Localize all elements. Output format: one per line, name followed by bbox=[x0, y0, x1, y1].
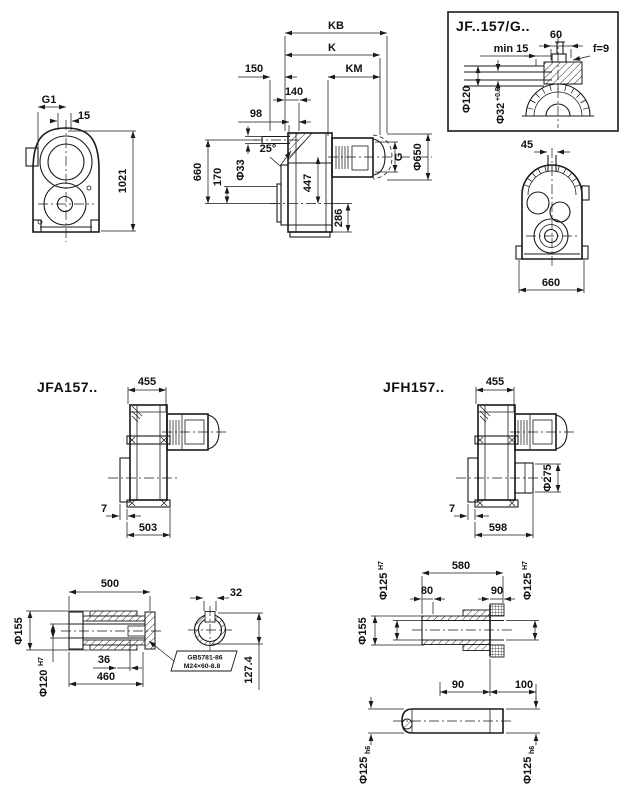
callout-standard: GB5781-86 bbox=[187, 655, 222, 662]
jfa-title: JFA157.. bbox=[37, 379, 98, 395]
jfa157-view: JFA157.. 455 bbox=[37, 376, 228, 538]
input-cone bbox=[288, 133, 312, 160]
dim-660-rear: 660 bbox=[542, 277, 560, 289]
jfh-title: JFH157.. bbox=[383, 379, 445, 395]
dim-170: 170 bbox=[212, 168, 224, 186]
motor-body bbox=[332, 138, 373, 177]
dim-phi650: Φ650 bbox=[412, 143, 424, 170]
shrink-disk-top bbox=[490, 604, 504, 616]
dim-1021: 1021 bbox=[117, 169, 129, 193]
svg-text:H7: H7 bbox=[522, 561, 529, 570]
dim-127-4: 127.4 bbox=[243, 655, 255, 683]
plug-in-shaft-dims: Φ125 h6 Φ125 h6 bbox=[358, 697, 540, 784]
shaft-left-flange bbox=[69, 612, 83, 649]
svg-text:h6: h6 bbox=[529, 746, 536, 754]
terminal-box bbox=[26, 148, 38, 166]
dim-phi125-h7-right: Φ125 bbox=[522, 573, 534, 600]
callout-bolt-size: M24×60-8.8 bbox=[184, 663, 221, 670]
dim-phi32: Φ32 bbox=[495, 103, 507, 124]
dim-kb: KB bbox=[328, 20, 344, 32]
dim-90-bottom: 90 bbox=[452, 679, 464, 691]
dim-150: 150 bbox=[245, 63, 263, 75]
end-washer bbox=[552, 54, 566, 62]
dim-460: 460 bbox=[97, 671, 115, 683]
dim-phi275: Φ275 bbox=[542, 464, 554, 491]
dim-phi155-left: Φ155 bbox=[13, 617, 25, 644]
dim-100: 100 bbox=[515, 679, 533, 691]
dim-phi120-tolerance: H7 bbox=[38, 657, 45, 666]
dim-580: 580 bbox=[452, 560, 470, 572]
dim-36: 36 bbox=[98, 654, 110, 666]
dim-80: 80 bbox=[421, 585, 433, 597]
dim-km: KM bbox=[345, 63, 362, 75]
dim-phi120-h7: Φ120 bbox=[38, 670, 50, 697]
dim-503: 503 bbox=[139, 522, 157, 534]
dim-60: 60 bbox=[550, 29, 562, 41]
dim-phi120: Φ120 bbox=[461, 86, 473, 113]
motor-fan-grille bbox=[336, 146, 348, 169]
jfh-dims: 455 Φ275 7 598 bbox=[449, 376, 561, 538]
dim-455-jfa: 455 bbox=[138, 376, 156, 388]
dim-98: 98 bbox=[250, 108, 262, 120]
svg-text:h6: h6 bbox=[365, 746, 372, 754]
dim-32: 32 bbox=[230, 587, 242, 599]
dim-phi125-h7-left: Φ125 bbox=[378, 573, 390, 600]
dim-k: K bbox=[328, 42, 336, 54]
jfa-bolt-marks bbox=[129, 437, 167, 443]
jfh-output-hub bbox=[468, 458, 478, 502]
dim-g1: G1 bbox=[42, 94, 57, 106]
dim-90-top: 90 bbox=[491, 585, 503, 597]
dim-7-jfh: 7 bbox=[449, 503, 455, 515]
dim-7-jfa: 7 bbox=[101, 503, 107, 515]
side-view: KB K KM 150 140 98 660 17 bbox=[192, 20, 432, 237]
shaft-end-cap bbox=[145, 612, 155, 649]
side-view-dims: KB K KM 150 140 98 660 17 bbox=[192, 20, 432, 232]
dim-phi125-h6-right: Φ125 bbox=[522, 757, 534, 784]
dim-660: 660 bbox=[192, 163, 204, 181]
dim-45: 45 bbox=[521, 139, 533, 151]
front-view: G1 15 1021 bbox=[26, 94, 136, 242]
shaft-detail-box: JF..157/G.. 60 bbox=[448, 12, 618, 131]
front-view-dims: G1 15 1021 bbox=[38, 94, 136, 231]
dim-286: 286 bbox=[333, 209, 345, 227]
shrink-disk-bottom bbox=[490, 645, 504, 657]
dim-500: 500 bbox=[101, 578, 119, 590]
rear-view-dims: 45 660 bbox=[519, 139, 584, 293]
hollow-shaft-detail: 500 Φ155 Φ120 H7 36 460 GB5781-86 M bbox=[13, 578, 263, 697]
detail-box-title: JF..157/G.. bbox=[456, 18, 530, 34]
output-flange bbox=[281, 165, 288, 225]
dim-25deg: 25° bbox=[260, 143, 277, 155]
dim-140: 140 bbox=[285, 86, 303, 98]
dim-phi125-h6-left: Φ125 bbox=[358, 757, 370, 784]
dim-phi33: Φ33 bbox=[235, 159, 247, 180]
dim-598: 598 bbox=[489, 522, 507, 534]
dim-phi155-right-detail: Φ155 bbox=[357, 617, 369, 644]
dim-min15: min 15 bbox=[494, 43, 529, 55]
jfh157-view: JFH157.. 455 bbox=[383, 376, 576, 538]
dim-f9: f=9 bbox=[593, 43, 609, 55]
jfh-bolt-marks bbox=[477, 437, 515, 443]
shrink-shaft-detail: Φ125 H7 Φ155 580 80 90 Φ125 bbox=[357, 560, 540, 784]
dim-455-jfh: 455 bbox=[486, 376, 504, 388]
dim-447: 447 bbox=[302, 174, 314, 192]
drawing-canvas: G1 15 1021 bbox=[0, 0, 625, 803]
jfa-output-hub bbox=[120, 458, 130, 502]
gearmotor-dimension-drawing: G1 15 1021 bbox=[0, 0, 625, 803]
svg-text:H7: H7 bbox=[378, 561, 385, 570]
dim-15: 15 bbox=[78, 110, 90, 122]
rear-view: 45 660 bbox=[516, 139, 589, 293]
dim-phi32-tolerance: +0.5 bbox=[495, 87, 502, 101]
shaft-end-detail bbox=[402, 719, 412, 729]
hub-section bbox=[544, 62, 582, 84]
dim-g: G bbox=[393, 153, 405, 162]
